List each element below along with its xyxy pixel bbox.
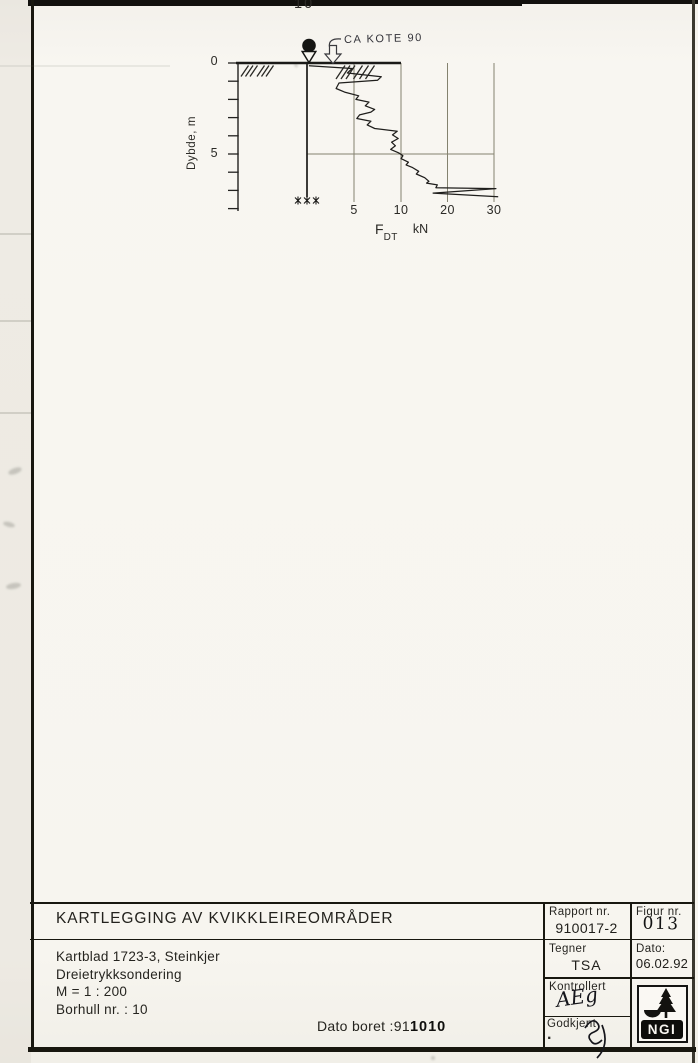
x-axis-label-unit: kN [413,222,428,236]
borehole-number-label: 10 [294,0,314,13]
scan-streak [0,320,31,322]
info-line-kartblad: Kartblad 1723-3, Steinkjer [56,948,220,966]
project-info: Kartblad 1723-3, Steinkjer Dreietrykkson… [56,948,220,1018]
scan-streak [0,412,31,414]
title-block-divider-h2 [543,977,694,979]
dato-label: Dato: [636,943,666,956]
title-block-divider-h1 [30,939,694,941]
x-tick-30: 30 [483,203,505,217]
ngi-logo-text: NGI [641,1020,683,1039]
document-title: KARTLEGGING AV KVIKKLEIREOMRÅDER [56,910,393,928]
borehole-bottom-markers [295,197,319,205]
chart-gridlines [307,63,494,202]
rapport-value: 910017-2 [543,920,630,936]
x-tick-20: 20 [437,203,459,217]
scan-dot [431,1056,435,1060]
x-axis-label-f: F [375,221,384,237]
tegner-label: Tegner [549,943,587,956]
x-tick-10: 10 [390,203,412,217]
info-line-borhull: Borhull nr. : 10 [56,1001,220,1019]
fdt-profile-curve [309,66,498,197]
figur-value: 013 [630,914,692,935]
rapport-label: Rapport nr. [549,906,610,919]
info-line-metode: Dreietrykksondering [56,966,220,984]
godkjent-dot: . [547,1026,551,1044]
godkjent-signature [577,1012,615,1060]
tegner-value: TSA [543,957,630,973]
dato-value: 06.02.92 [630,957,694,972]
kontrollert-signature: AEg [555,983,600,1012]
info-line-maalestokk: M = 1 : 200 [56,983,220,1001]
title-block-top-border [30,902,694,904]
borehole-marker-icon [302,39,316,63]
dato-boret-value: 1010 [410,1019,446,1035]
scanned-sheet: 10 CA KOTE 90 Dybde, m 0 5 5 10 20 30 FD… [0,0,698,1063]
ground-hatching-left [241,66,274,77]
x-axis-label-sub: DT [384,232,398,243]
elevation-arrow-icon [325,46,341,64]
x-axis-label: FDTkN [375,221,428,239]
elevation-annotation: CA KOTE 90 [344,32,423,47]
ngi-logo: NGI [637,985,688,1043]
y-tick-0: 0 [204,54,218,68]
dato-boret-label: Dato boret :91 [317,1018,410,1034]
depth-axis-label: Dybde, m [186,100,198,170]
x-tick-5: 5 [343,203,365,217]
ngi-logo-tree-icon [640,988,684,1020]
y-tick-5: 5 [204,146,218,160]
dato-boret: Dato boret :911010 [317,1018,446,1036]
depth-axis [228,63,239,211]
